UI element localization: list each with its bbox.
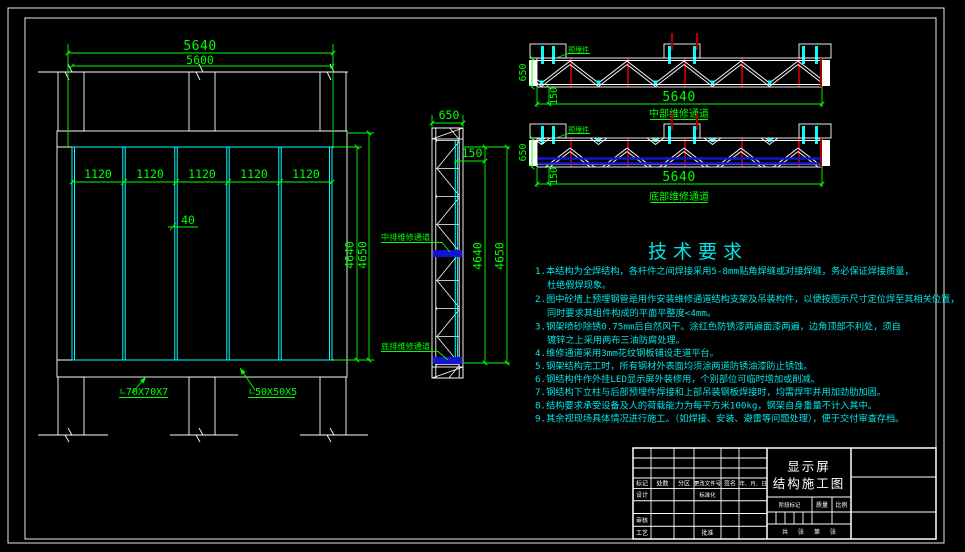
front-elevation-view: 5640 5600 1120 1120 1120 1120 1120 40 46… xyxy=(38,39,374,442)
fv-dim-1120-5: 1120 xyxy=(292,167,320,181)
note-line: 2.图中砼墙上预埋钢管是用作安装维修通道结构支架及吊装构件，以便按图示尺寸定位焊… xyxy=(535,293,960,305)
note-line: 9.其余视现场具体情况进行施工。（如焊接、安装、避雷等问题处理），便于交付审查存… xyxy=(535,413,904,425)
note-line: 5.钢架结构完工时，所有钢材外表面均须涂两道防锈油漆防止锈蚀。 xyxy=(535,360,813,372)
fv-dim-5640: 5640 xyxy=(183,39,216,54)
tb-dim-650: 650 xyxy=(518,143,529,161)
fv-dim-1120-4: 1120 xyxy=(240,167,268,181)
note-line: 杜绝假焊现象。 xyxy=(547,279,611,291)
sv-dim-4650: 4650 xyxy=(493,242,507,270)
fv-dim-1120-1: 1120 xyxy=(84,167,112,181)
side-section-view: 650 150 4640 4650 中排维修通道 底排维修通道 xyxy=(381,108,510,378)
truss-end-plate-left xyxy=(529,140,537,166)
scale-label: 比例 xyxy=(835,501,847,509)
rev-header-mark: 标记 xyxy=(636,480,648,488)
tm-dim-5640: 5640 xyxy=(662,90,695,105)
truss-end-plate-left xyxy=(529,60,537,86)
rev-header-doc-no: 更改文件号 xyxy=(694,480,722,488)
fv-angle-steel-label-2: ∟50X50X5 xyxy=(249,387,297,398)
note-line: 8.结构要求承受设备及人的荷载能力为每平方米100kg，钢架自身重量不计入其中。 xyxy=(535,400,877,412)
weight-label: 质量 xyxy=(816,501,828,509)
note-line: 镀锌之上采用两布三油防腐处理。 xyxy=(547,334,685,346)
design-label: 设计 xyxy=(636,491,648,499)
truss-mid-caption: 中部维修通道 xyxy=(649,107,709,120)
mid-walkway-label: 中排维修通道 xyxy=(381,232,430,242)
bottom-walkway-plate xyxy=(433,357,462,364)
note-line: 1.本结构为全焊结构，各杆件之间焊接采用5-8mm贴角焊缝或对接焊缝，务必保证焊… xyxy=(535,265,914,277)
rev-header-zone: 分区 xyxy=(678,480,690,488)
truss-bottom-caption: 底部维修通道 xyxy=(649,190,709,203)
sheet-unit2-label: 张 xyxy=(830,528,836,536)
tb-dim-150: 150 xyxy=(549,167,560,185)
note-line: 4.维修通道采用3mm花纹钢板铺设走道平台。 xyxy=(535,347,719,359)
rev-header-date: 年、月、日 xyxy=(740,480,767,488)
truss-plan-bottom: 预埋件 650 150 5640 底部维修通道 xyxy=(518,113,831,203)
note-line: 3.钢架喷砂除锈0.75mm后自然风干。涂红色防锈漆两遍面漆两遍，边角顶部不利处… xyxy=(535,321,901,333)
note-line: 6.钢结构件作外挂LED显示屏外装修用，个别部位可临时增加或削减。 xyxy=(535,373,820,385)
check-label: 审核 xyxy=(636,516,648,524)
truss-plan-middle: 预埋件 650 150 5640 中部维修通道 xyxy=(518,33,831,120)
top-wall-and-columns xyxy=(38,64,348,131)
embed-part-label: 预埋件 xyxy=(568,45,589,54)
tech-notes-title: 技术要求 xyxy=(648,241,748,263)
sv-dim-4640: 4640 xyxy=(471,242,485,270)
technical-notes: 技术要求 1.本结构为全焊结构，各杆件之间焊接采用5-8mm贴角焊缝或对接焊缝，… xyxy=(535,241,960,425)
embed-part-label: 预埋件 xyxy=(568,125,589,134)
tm-dim-150: 150 xyxy=(549,87,560,105)
sv-dim-150: 150 xyxy=(462,146,483,160)
standard-label: 标准化 xyxy=(699,491,716,499)
sheet-no-label: 第 xyxy=(814,528,820,536)
fv-angle-steel-label: ∟70X70X7 xyxy=(120,387,168,398)
fv-dim-4650: 4650 xyxy=(356,241,370,269)
rev-header-sign: 签名 xyxy=(724,480,736,488)
sheet-unit-label: 张 xyxy=(798,528,804,536)
truss-end-plate-right xyxy=(822,60,830,86)
stage-mark-label: 阶段标记 xyxy=(779,501,801,509)
truss-end-plate-right xyxy=(822,140,830,166)
approve-label: 批准 xyxy=(701,529,713,537)
tm-dim-650: 650 xyxy=(518,63,529,81)
note-line: 7.钢结构下立柱与后部预埋件焊接和上部吊装钢板焊接时，均需焊牢并用加劲肋加固。 xyxy=(535,386,886,398)
tb-dim-5640: 5640 xyxy=(662,170,695,185)
fv-dim-1120-2: 1120 xyxy=(136,167,164,181)
fv-dim-5600: 5600 xyxy=(186,53,214,67)
bottom-columns-and-ground xyxy=(38,377,368,442)
bottom-walkway-label: 底排维修通道 xyxy=(381,341,430,351)
drawing-title-line1: 显示屏 xyxy=(787,459,831,474)
sv-dim-650: 650 xyxy=(439,108,460,122)
rev-header-count: 处数 xyxy=(656,480,668,488)
mid-walkway-plate xyxy=(433,250,462,257)
drawing-title-line2: 结构施工图 xyxy=(773,476,846,491)
cad-drawing: 5640 5600 1120 1120 1120 1120 1120 40 46… xyxy=(0,0,965,552)
fv-dim-40: 40 xyxy=(181,213,195,227)
sheet-total-label: 共 xyxy=(782,528,788,536)
process-label: 工艺 xyxy=(636,529,648,537)
title-block: 标记 处数 分区 更改文件号 签名 年、月、日 设计 标准化 审核 工艺 批准 … xyxy=(633,448,936,539)
note-line: 同时要求其组件构成的平面平整度<4mm。 xyxy=(547,307,716,319)
fv-dim-1120-3: 1120 xyxy=(188,167,216,181)
fv-leader-labels: ∟70X70X7 ∟50X50X5 xyxy=(119,368,297,398)
fv-dimensions: 5640 5600 1120 1120 1120 1120 1120 40 46… xyxy=(68,39,374,360)
fv-dim-4640: 4640 xyxy=(343,241,357,269)
